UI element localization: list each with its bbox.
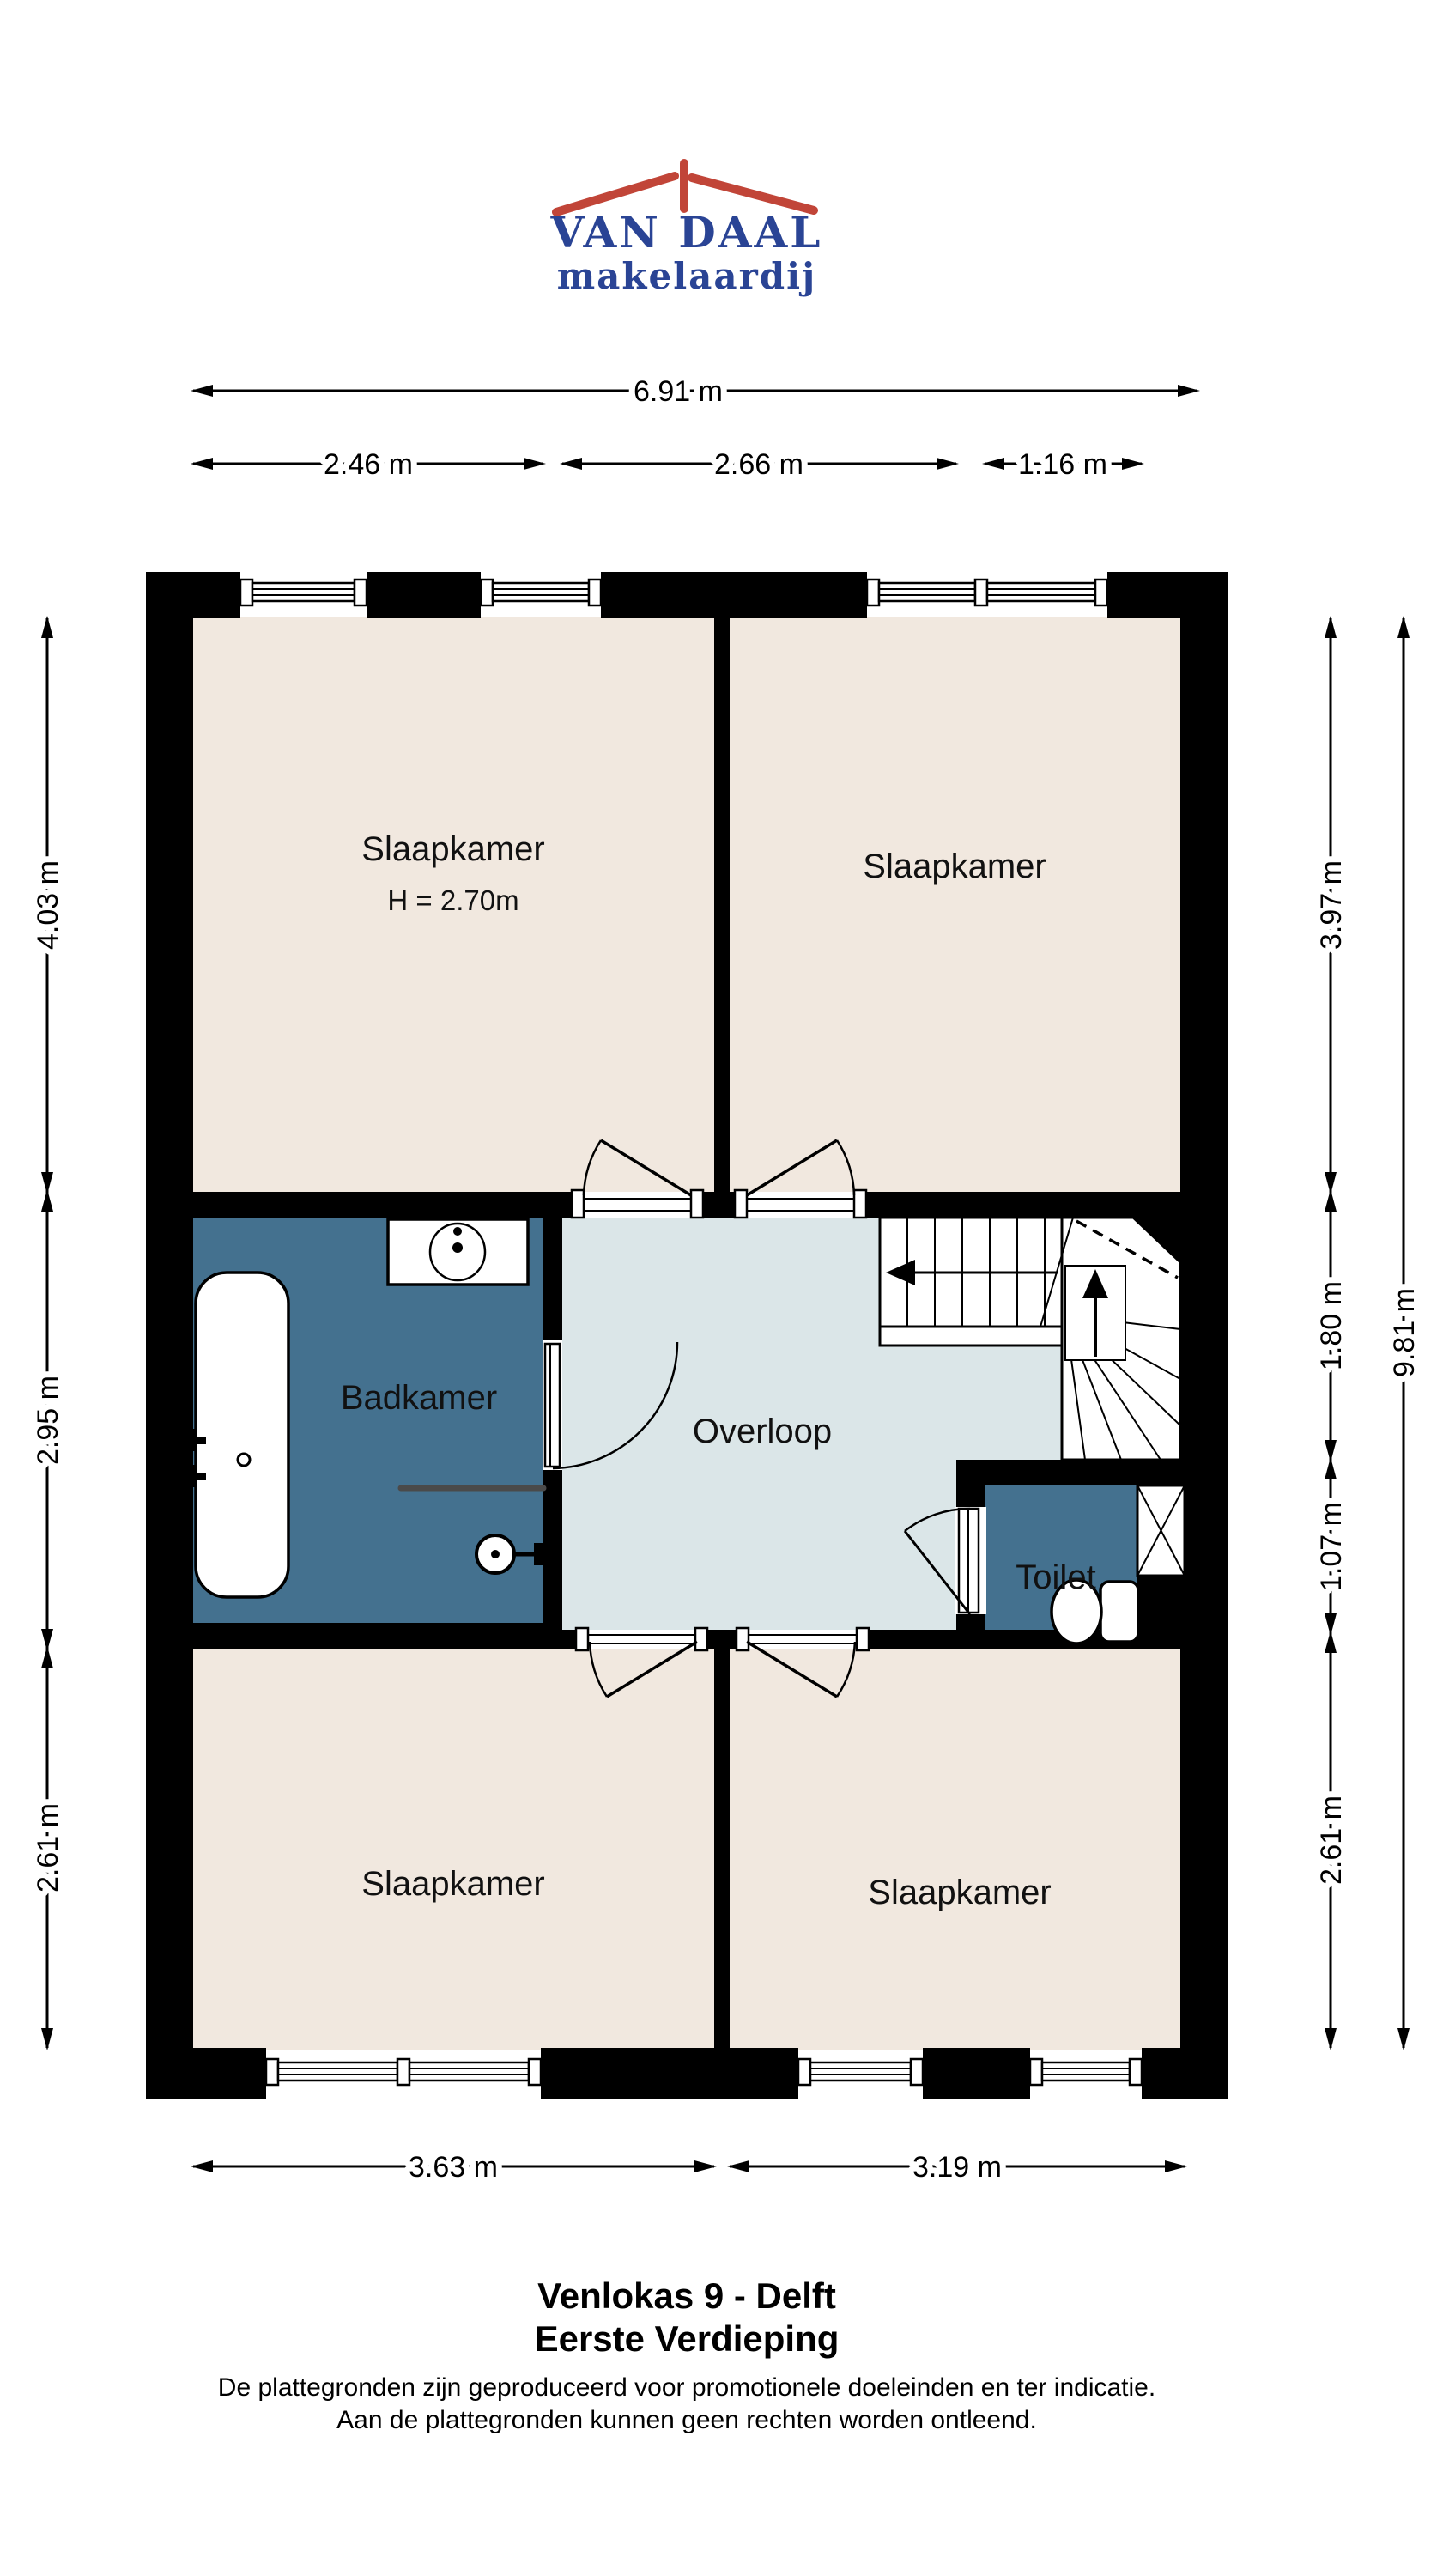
svg-text:3.97 m: 3.97 m: [1315, 860, 1348, 950]
plan-floor-name: Eerste Verdieping: [535, 2318, 840, 2359]
floorplan-page: VAN DAAL makelaardij: [0, 0, 1449, 2576]
logo-name: VAN DAAL: [550, 207, 823, 258]
landing-label: Overloop: [693, 1413, 832, 1450]
window-bottom-1: [266, 2059, 541, 2085]
toilet-label: Toilet: [1016, 1558, 1095, 1596]
dim-right-bottom: 2.61 m: [1315, 1633, 1348, 2048]
bedroom-bottom-right-label: Slaapkamer: [868, 1874, 1051, 1911]
disclaimer-line-2: Aan de plattegronden kunnen geen rechten…: [336, 2406, 1037, 2434]
svg-text:2.46 m: 2.46 m: [324, 448, 413, 481]
bedroom-bottom-right-floor: [728, 1647, 1182, 2050]
dim-bottom-right: 3.19 m: [730, 2151, 1185, 2184]
dim-right-toilet: 1.07 m: [1315, 1460, 1348, 1633]
window-bottom-2: [798, 2059, 923, 2085]
dim-right-top: 3.97 m: [1315, 618, 1348, 1192]
roof-icon: [556, 163, 814, 212]
agency-logo: VAN DAAL makelaardij: [550, 163, 823, 297]
dim-right-stairs: 1.80 m: [1315, 1192, 1348, 1460]
bedroom-top-right-floor: [728, 617, 1182, 1194]
dim-top-left: 2.46 m: [193, 448, 543, 481]
svg-text:2.95 m: 2.95 m: [32, 1376, 64, 1465]
bathroom-label: Badkamer: [341, 1379, 497, 1417]
svg-text:6.91 m: 6.91 m: [634, 375, 723, 408]
svg-text:1.80 m: 1.80 m: [1315, 1281, 1348, 1370]
svg-text:9.81 m: 9.81 m: [1388, 1288, 1421, 1377]
bedroom-top-right-label: Slaapkamer: [863, 848, 1046, 885]
bedroom-bottom-left-label: Slaapkamer: [361, 1865, 544, 1903]
disclaimer-line-1: De plattegronden zijn geproduceerd voor …: [218, 2373, 1155, 2402]
window-bottom-3: [1030, 2059, 1142, 2085]
title-block: Venlokas 9 - Delft Eerste Verdieping De …: [218, 2275, 1155, 2434]
dim-top-total: 6.91 m: [193, 375, 1197, 408]
dim-left-middle: 2.95 m: [32, 1192, 64, 1649]
window-top-1: [240, 580, 367, 605]
plan-address: Venlokas 9 - Delft: [537, 2275, 836, 2316]
floorplan-drawing: VAN DAAL makelaardij: [0, 0, 1449, 2576]
dim-left-top: 4.03 m: [32, 618, 64, 1192]
svg-text:3.63 m: 3.63 m: [409, 2151, 498, 2184]
bathtub-icon: [182, 1273, 288, 1597]
svg-text:2.66 m: 2.66 m: [714, 448, 803, 481]
bedroom-bottom-left-floor: [193, 1647, 717, 2050]
bedroom-top-left-label: Slaapkamer: [361, 830, 544, 868]
svg-text:4.03 m: 4.03 m: [32, 860, 64, 950]
svg-text:1.07 m: 1.07 m: [1315, 1502, 1348, 1591]
logo-tagline: makelaardij: [557, 255, 817, 297]
dim-top-right: 1.16 m: [985, 448, 1142, 481]
dim-bottom-left: 3.63 m: [193, 2151, 714, 2184]
svg-text:3.19 m: 3.19 m: [912, 2151, 1002, 2184]
duct-shaft: [1137, 1485, 1185, 1576]
window-top-3: [867, 580, 1107, 605]
dim-left-bottom: 2.61 m: [32, 1649, 64, 2048]
svg-text:2.61 m: 2.61 m: [1315, 1795, 1348, 1885]
svg-text:1.16 m: 1.16 m: [1018, 448, 1107, 481]
dim-top-middle: 2.66 m: [562, 448, 956, 481]
bedroom-top-left-height-note: H = 2.70m: [387, 884, 518, 916]
svg-text:2.61 m: 2.61 m: [32, 1803, 64, 1893]
dim-right-total: 9.81 m: [1388, 618, 1421, 2048]
washbasin-icon: [388, 1219, 528, 1285]
window-top-2: [481, 580, 601, 605]
